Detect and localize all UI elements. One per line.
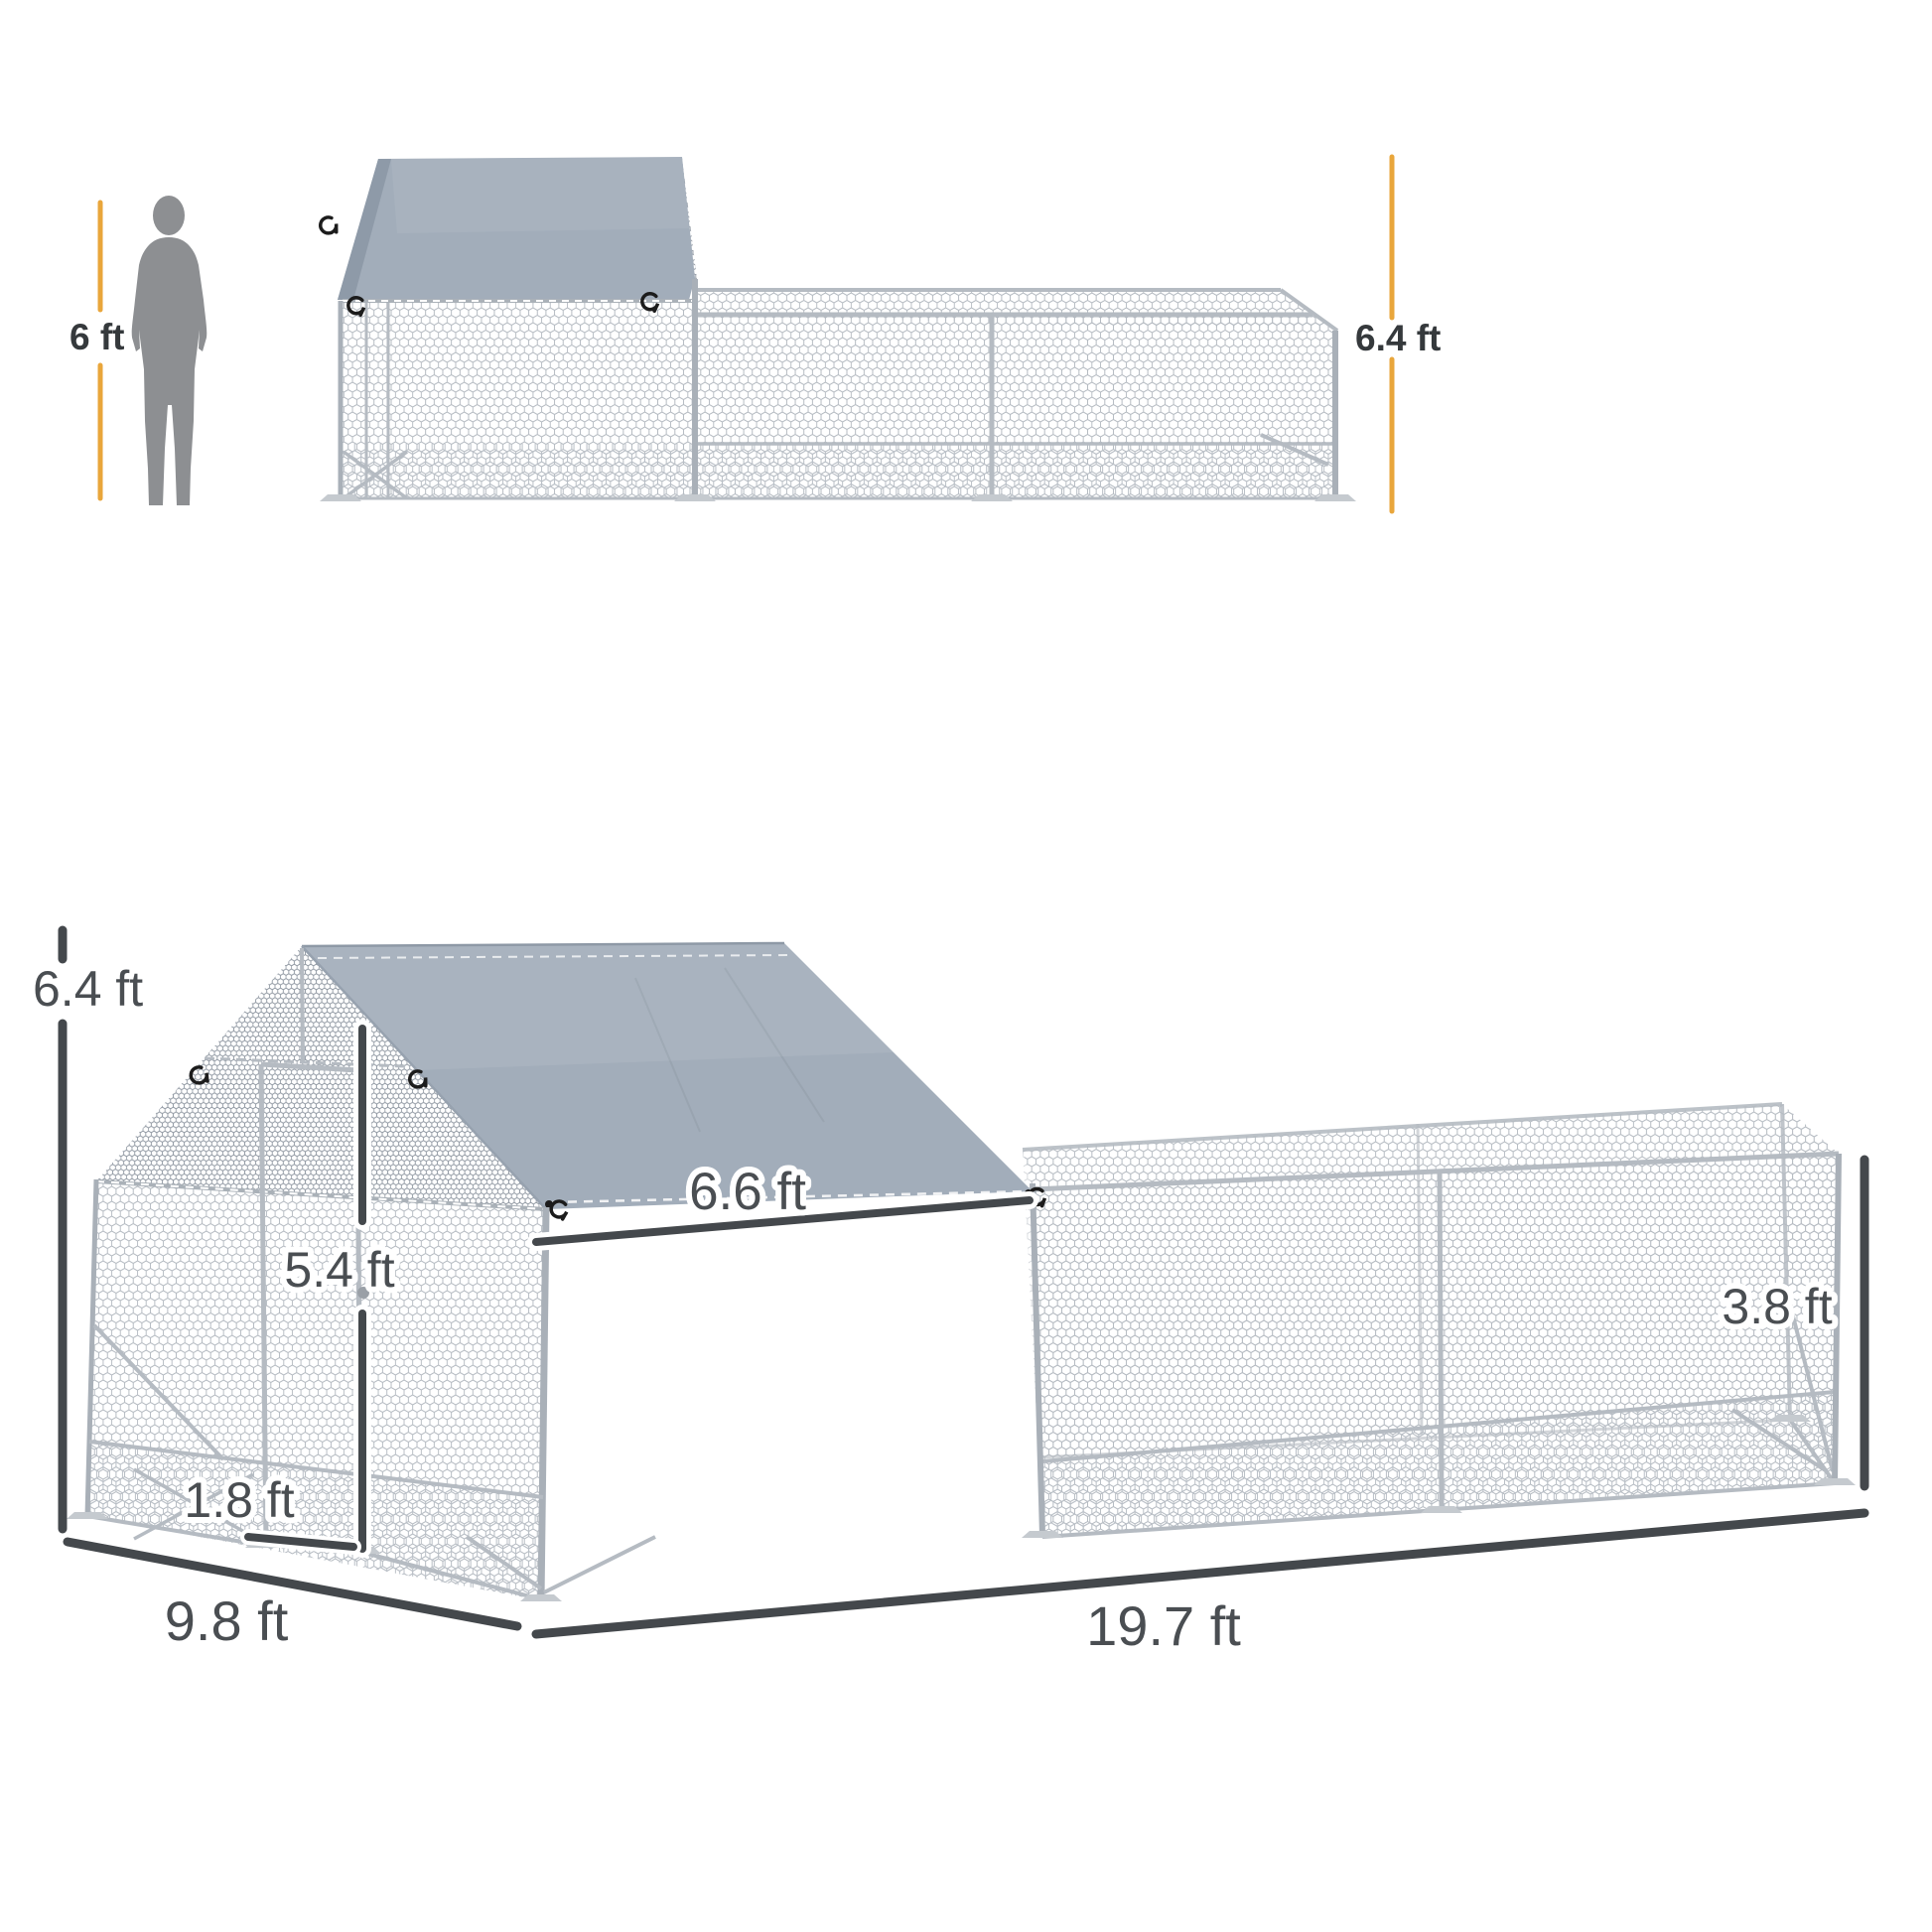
- label-apron-height: 1.8 ft: [184, 1472, 294, 1528]
- product-dimension-diagram: 6 ft: [0, 0, 1932, 1932]
- human-silhouette: [132, 196, 207, 505]
- label-structure-height: 6.4 ft: [1355, 318, 1441, 358]
- run-front-mid-post: [1440, 1172, 1442, 1511]
- roof-tarp-sheen: [391, 157, 689, 233]
- front-corner-brace-right: [544, 1537, 655, 1592]
- label-peak-height: 6.4 ft: [33, 961, 143, 1017]
- diagram-canvas: 6 ft: [0, 0, 1932, 1932]
- side-view-gable: [319, 157, 716, 501]
- human-height-dimension: 6 ft: [69, 203, 125, 498]
- label-width: 9.8 ft: [165, 1589, 289, 1652]
- structure-height-dimension: 6.4 ft: [1355, 157, 1441, 511]
- label-length: 19.7 ft: [1086, 1594, 1241, 1657]
- label-run-height: 3.8 ft: [1722, 1279, 1832, 1334]
- tarp-hook-icon: [549, 1199, 569, 1219]
- label-roof-length: 6.6 ft: [689, 1163, 806, 1221]
- gable-apron-mesh: [341, 444, 695, 499]
- label-door-height: 5.4 ft: [284, 1242, 394, 1298]
- run-front-corner-post: [1835, 1154, 1839, 1483]
- side-view: 6 ft: [69, 157, 1441, 511]
- gable-ridge-post: [302, 948, 303, 1062]
- front-corner-post: [541, 1207, 546, 1599]
- length-dimension: 19.7 ft: [536, 1513, 1864, 1657]
- tarp-hook-icon: [319, 215, 339, 235]
- run-apron-mesh: [695, 444, 1337, 499]
- label-human-height: 6 ft: [69, 317, 125, 357]
- perspective-view: 6.4 ft 5.4 ft 6.6 ft 1.8 ft 3.8 ft 9.8 f…: [33, 930, 1864, 1657]
- side-view-run: [695, 290, 1356, 501]
